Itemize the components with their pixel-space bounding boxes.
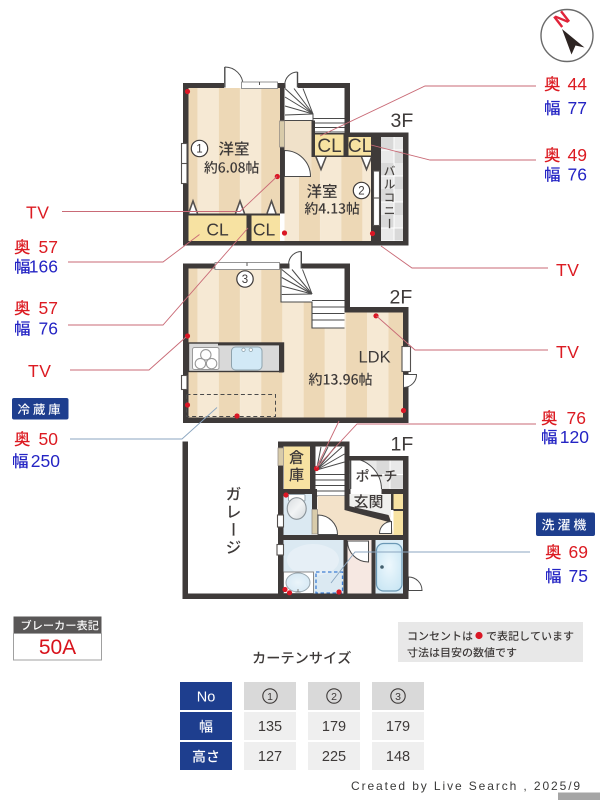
svg-text:69: 69	[569, 542, 588, 562]
svg-text:TV: TV	[26, 203, 49, 223]
svg-text:TV: TV	[556, 260, 579, 280]
svg-text:CL: CL	[253, 220, 276, 240]
svg-text:179: 179	[386, 719, 410, 735]
svg-text:57: 57	[39, 298, 58, 318]
svg-text:179: 179	[322, 719, 346, 735]
svg-text:2: 2	[331, 691, 337, 703]
svg-text:76: 76	[568, 165, 587, 185]
svg-text:1: 1	[267, 691, 273, 703]
svg-text:CL: CL	[348, 136, 372, 157]
svg-text:76: 76	[567, 408, 586, 428]
svg-text:TV: TV	[556, 342, 579, 362]
svg-text:225: 225	[322, 749, 346, 765]
svg-text:166: 166	[29, 257, 58, 277]
svg-text:3: 3	[395, 691, 401, 703]
svg-text:CL: CL	[317, 136, 341, 157]
svg-text:77: 77	[568, 98, 587, 118]
svg-text:50: 50	[39, 429, 59, 449]
svg-text:3: 3	[242, 274, 248, 286]
svg-text:120: 120	[560, 427, 589, 447]
svg-text:No: No	[197, 690, 216, 706]
svg-text:2: 2	[358, 186, 364, 198]
svg-text:57: 57	[39, 237, 58, 257]
svg-text:44: 44	[568, 74, 588, 94]
svg-text:2F: 2F	[390, 287, 413, 309]
svg-text:75: 75	[569, 566, 588, 586]
svg-text:49: 49	[568, 145, 587, 165]
svg-text:148: 148	[386, 749, 410, 765]
svg-text:50A: 50A	[39, 636, 76, 659]
svg-text:TV: TV	[28, 361, 51, 381]
svg-text:3F: 3F	[391, 110, 414, 132]
svg-text:1: 1	[196, 144, 202, 156]
svg-text:CL: CL	[206, 220, 229, 240]
svg-text:1F: 1F	[391, 434, 414, 456]
svg-text:250: 250	[31, 451, 60, 471]
svg-text:Created by Live Search , 2025/: Created by Live Search , 2025/9	[351, 779, 582, 793]
svg-text:76: 76	[39, 319, 58, 339]
svg-text:LDK: LDK	[359, 349, 391, 367]
svg-text:135: 135	[258, 719, 282, 735]
svg-text:127: 127	[258, 749, 282, 765]
